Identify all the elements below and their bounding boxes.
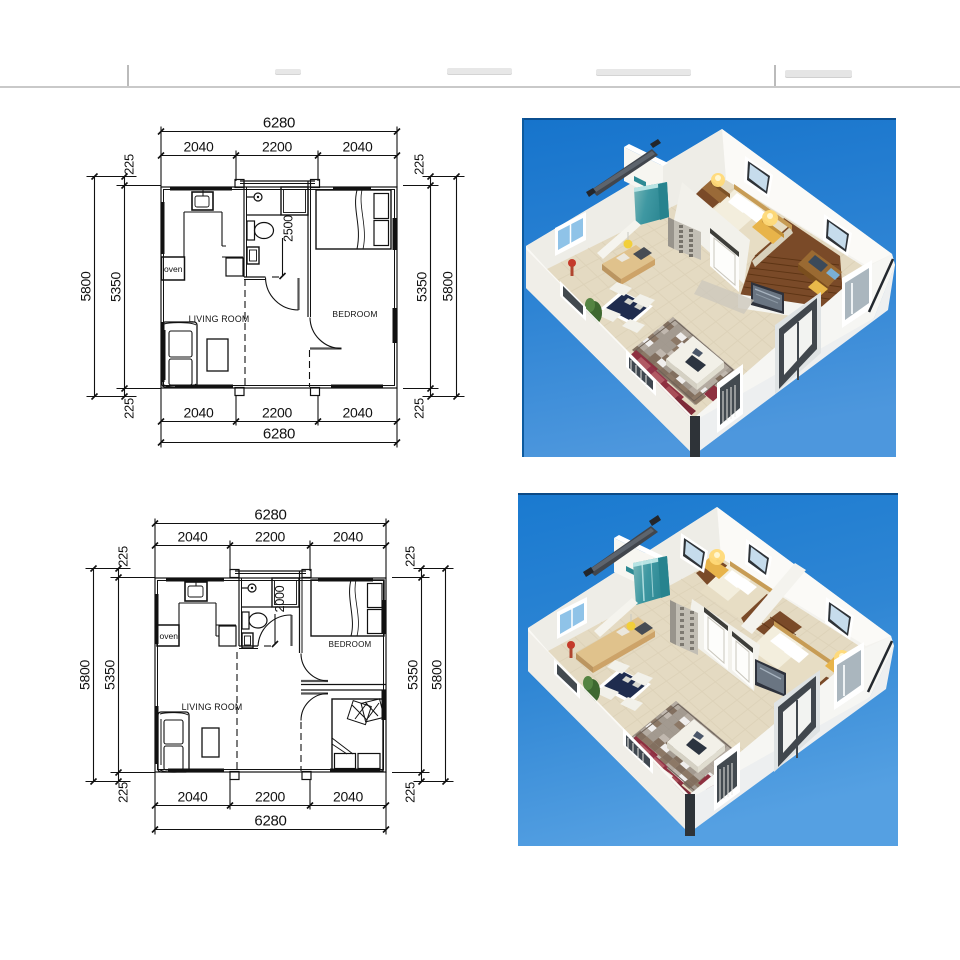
svg-text:2040: 2040 [343, 405, 373, 421]
svg-text:oven: oven [164, 264, 183, 274]
svg-text:2200: 2200 [262, 405, 292, 421]
svg-text:LIVING ROOM: LIVING ROOM [182, 702, 243, 712]
svg-text:2500: 2500 [282, 215, 296, 242]
svg-text:225: 225 [116, 546, 131, 567]
svg-text:oven: oven [160, 631, 179, 641]
svg-text:2040: 2040 [178, 529, 208, 545]
svg-text:2200: 2200 [262, 139, 292, 155]
svg-text:2200: 2200 [255, 789, 285, 805]
svg-text:6280: 6280 [263, 426, 295, 443]
svg-text:5350: 5350 [102, 660, 118, 690]
svg-text:225: 225 [403, 782, 418, 803]
svg-text:225: 225 [412, 398, 427, 419]
svg-text:225: 225 [403, 546, 418, 567]
svg-text:2040: 2040 [184, 405, 214, 421]
svg-text:225: 225 [412, 154, 427, 175]
svg-text:5350: 5350 [414, 272, 430, 302]
svg-text:2040: 2040 [333, 529, 363, 545]
svg-text:5800: 5800 [429, 660, 445, 690]
svg-text:6280: 6280 [263, 115, 295, 132]
svg-text:2200: 2200 [255, 529, 285, 545]
svg-text:5350: 5350 [108, 272, 124, 302]
svg-text:225: 225 [122, 398, 137, 419]
svg-text:6280: 6280 [254, 813, 286, 830]
svg-text:225: 225 [122, 154, 137, 175]
svg-text:BEDROOM: BEDROOM [332, 309, 377, 319]
svg-text:225: 225 [116, 782, 131, 803]
svg-text:5800: 5800 [77, 660, 93, 690]
svg-text:5350: 5350 [405, 660, 421, 690]
svg-text:5800: 5800 [440, 271, 456, 301]
svg-text:2040: 2040 [178, 789, 208, 805]
svg-text:LIVING ROOM: LIVING ROOM [189, 314, 250, 324]
svg-text:2040: 2040 [184, 139, 214, 155]
svg-text:2040: 2040 [343, 139, 373, 155]
svg-text:BEDROOM: BEDROOM [329, 640, 372, 649]
svg-text:5800: 5800 [78, 271, 94, 301]
svg-text:6280: 6280 [254, 507, 286, 524]
svg-text:2000: 2000 [273, 585, 287, 612]
svg-text:2040: 2040 [333, 789, 363, 805]
